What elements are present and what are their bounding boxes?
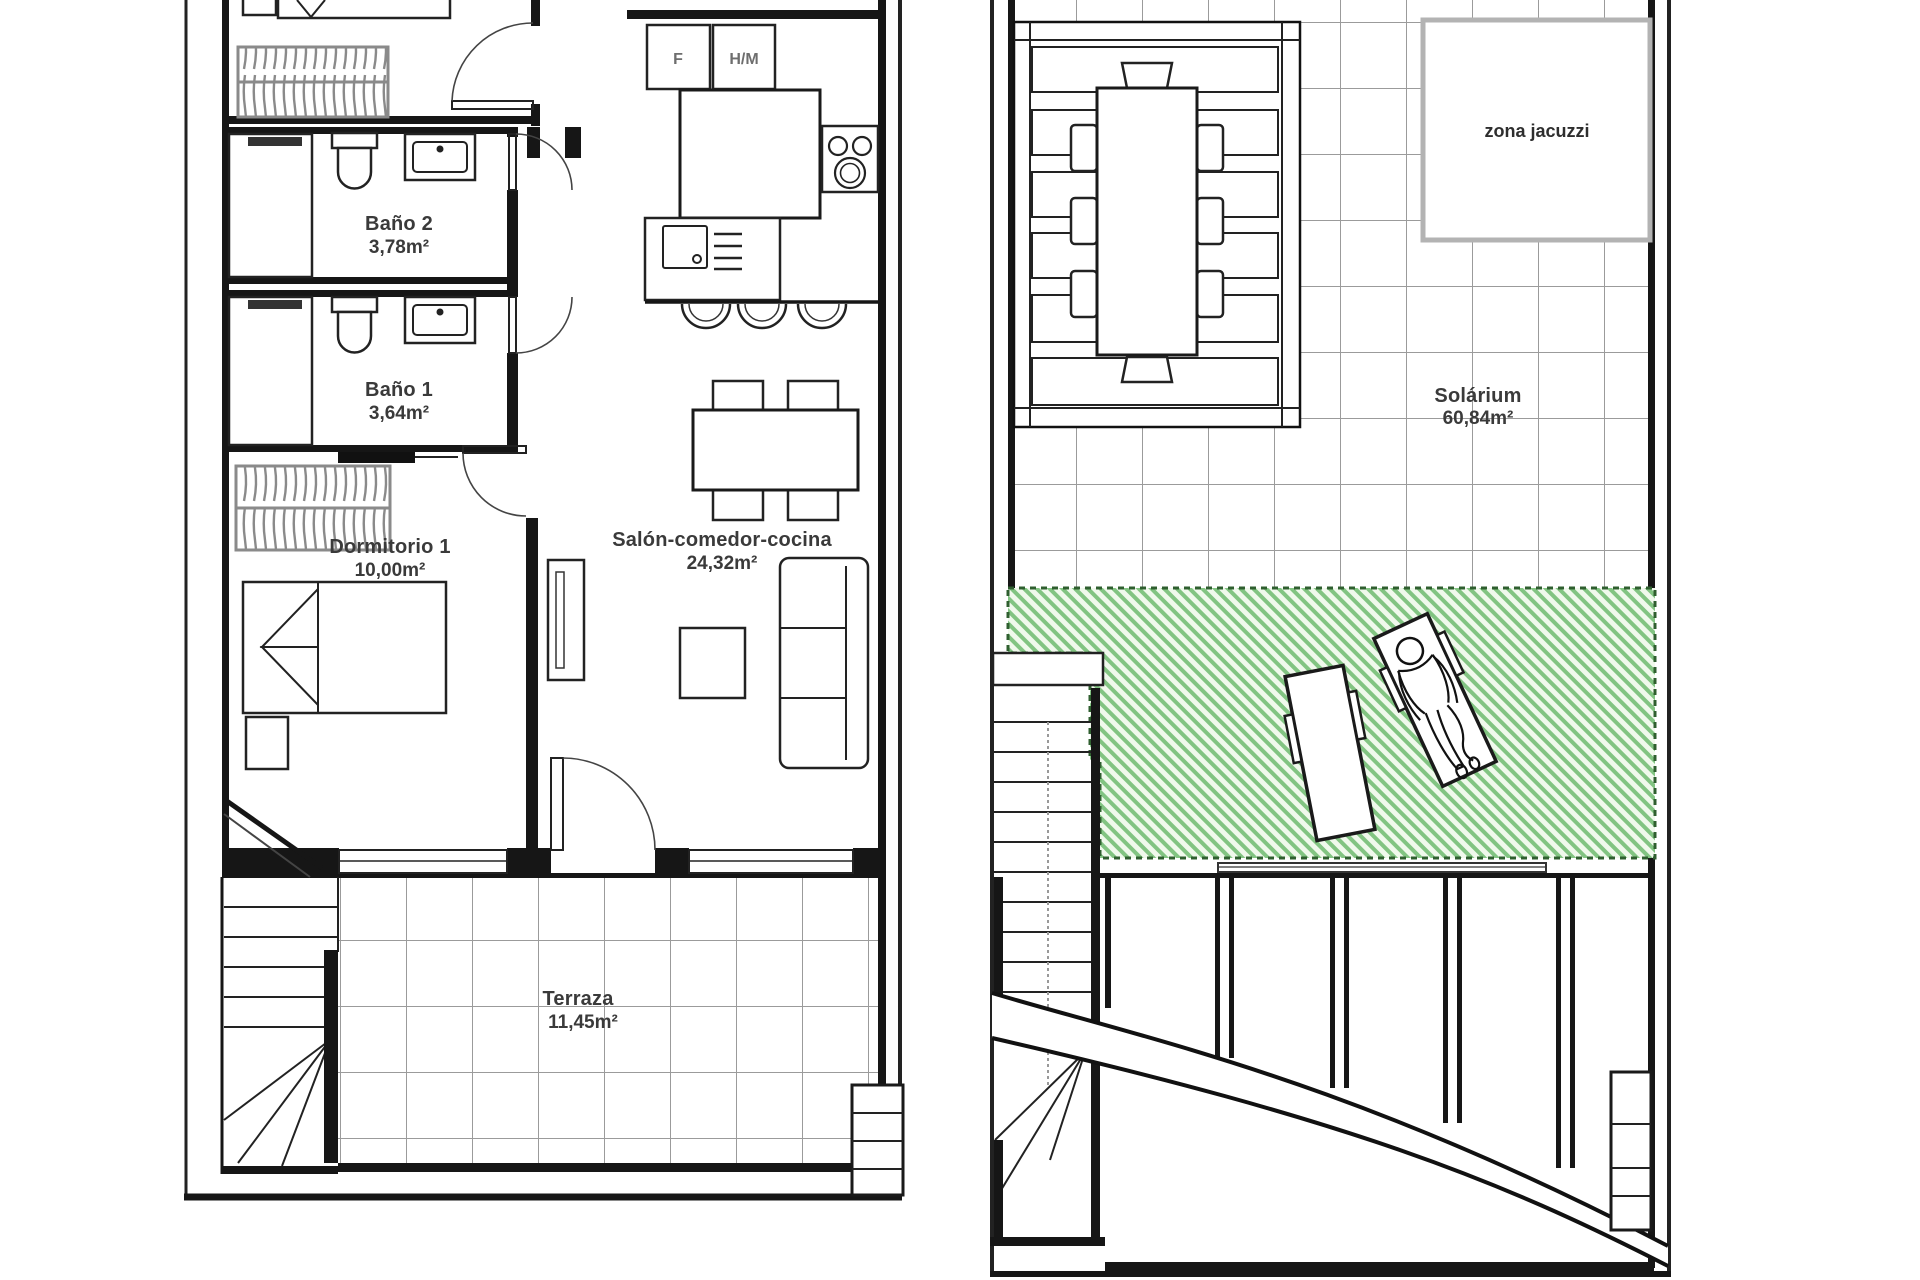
jacuzzi-zone: zona jacuzzi — [1423, 20, 1650, 240]
living-area — [548, 558, 868, 850]
sofa — [780, 558, 868, 768]
door-arc-bedroom2 — [452, 23, 533, 101]
bano1-name: Baño 1 — [365, 379, 433, 401]
side-steps-right-plan — [1611, 1072, 1651, 1230]
bedroom2-partial — [238, 0, 533, 117]
dining-chair — [788, 490, 838, 520]
outdoor-chair — [1071, 125, 1097, 171]
dining-chair — [788, 381, 838, 411]
terrace-windows — [339, 850, 853, 873]
toilet-tank-bano2 — [332, 133, 377, 148]
door-leaf-bano1 — [509, 297, 516, 353]
sliding-door — [338, 452, 415, 463]
shower-bano1 — [229, 297, 312, 445]
terraza-area: 11,45m² — [548, 1012, 618, 1033]
shower-shelf-bano1 — [248, 300, 302, 309]
oven-microwave-label: H/M — [729, 51, 758, 68]
dormitorio1-name: Dormitorio 1 — [329, 536, 450, 558]
salon-name: Salón-comedor-cocina — [612, 529, 832, 551]
dining-chair — [713, 490, 763, 520]
floor-plan-drawing: F H/M Baño 2 3,78m² Baño 1 3,64m² Dormit… — [0, 0, 1920, 1280]
toilet-tank-bano1 — [332, 297, 377, 312]
stairs-solarium — [990, 653, 1105, 1246]
door-leaf-bano2 — [509, 134, 516, 190]
kitchen-island — [680, 90, 820, 218]
shower-shelf-bano2 — [248, 137, 302, 146]
door-arc-bano2 — [516, 134, 572, 190]
dining-table — [693, 410, 858, 490]
nightstand-bottom — [246, 717, 288, 769]
sink-cabinet-bano2 — [405, 134, 475, 180]
outdoor-chair — [1197, 198, 1223, 244]
outdoor-table — [1097, 88, 1197, 355]
toilet-bano1 — [338, 312, 371, 353]
door-arc-bano1 — [516, 297, 572, 353]
jacuzzi-label: zona jacuzzi — [1484, 121, 1589, 141]
solarium-area: 60,84m² — [1443, 408, 1514, 429]
outdoor-chair — [1122, 357, 1172, 382]
door-arc-dormitorio1 — [463, 453, 526, 516]
door-arc-terraza — [563, 758, 655, 850]
sink-counter — [645, 218, 780, 300]
dormitorio1-area: 10,00m² — [355, 560, 426, 581]
bano1-area: 3,64m² — [369, 403, 429, 424]
salon-area: 24,32m² — [687, 553, 758, 574]
door-leaf-bedroom2 — [452, 101, 533, 109]
side-steps-left-plan — [852, 1085, 903, 1195]
dining-set — [693, 381, 858, 520]
floor-plan-sheet: F H/M Baño 2 3,78m² Baño 1 3,64m² Dormit… — [0, 0, 1920, 1280]
outdoor-chair — [1122, 63, 1172, 88]
tv-unit — [548, 560, 584, 680]
outdoor-chair — [1197, 125, 1223, 171]
outdoor-chair — [1071, 198, 1097, 244]
first-floor-plan: F H/M Baño 2 3,78m² Baño 1 3,64m² Dormit… — [184, 0, 903, 1199]
bano2-name: Baño 2 — [365, 213, 433, 235]
solarium-plan: zona jacuzzi — [990, 0, 1671, 1276]
sink-cabinet-bano1 — [405, 297, 475, 343]
shower-bano2 — [229, 134, 312, 277]
terraza-name: Terraza — [542, 988, 614, 1010]
kitchen — [645, 25, 878, 328]
fridge-label: F — [673, 51, 683, 68]
bar-stools — [682, 304, 846, 328]
toilet-bano2 — [338, 148, 371, 189]
outdoor-chair — [1071, 271, 1097, 317]
bano2-area: 3,78m² — [369, 237, 429, 258]
coffee-table — [680, 628, 745, 698]
outdoor-chair — [1197, 271, 1223, 317]
door-leaf-terraza — [551, 758, 563, 850]
dining-chair — [713, 381, 763, 411]
solarium-name: Solárium — [1434, 385, 1521, 407]
